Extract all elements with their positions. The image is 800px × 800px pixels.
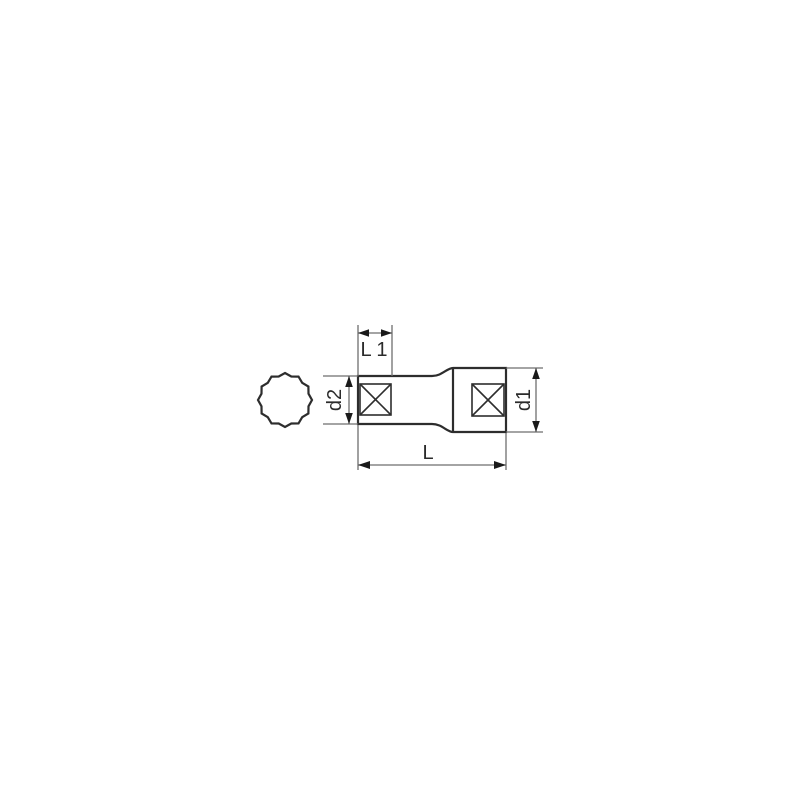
dimension-l1: L 1 xyxy=(358,325,392,376)
dimension-label-l: L xyxy=(422,442,433,464)
dimension-label-l1: L 1 xyxy=(360,339,387,361)
socket-body-outline xyxy=(358,368,506,432)
arrowhead-left-icon xyxy=(358,329,369,337)
arrowhead-up-icon xyxy=(532,368,540,379)
arrowhead-left-icon xyxy=(358,461,370,469)
bore-section-box-nut-end xyxy=(360,384,391,415)
arrowhead-right-icon xyxy=(494,461,506,469)
dimension-d1: d1 xyxy=(506,368,543,432)
arrowhead-right-icon xyxy=(381,329,392,337)
arrowhead-up-icon xyxy=(345,376,353,387)
drawing-canvas: L 1 d2 d1 L xyxy=(0,0,800,800)
bore-section-box-drive-end xyxy=(472,384,504,416)
dimension-label-d2: d2 xyxy=(324,389,346,411)
socket-side-view xyxy=(358,368,506,432)
arrowhead-down-icon xyxy=(532,421,540,432)
arrowhead-down-icon xyxy=(345,413,353,424)
socket-profile-12pt-shape xyxy=(258,373,312,427)
dimension-d2: d2 xyxy=(323,376,358,424)
dimension-label-d1: d1 xyxy=(513,389,535,411)
socket-technical-drawing: L 1 d2 d1 L xyxy=(0,0,800,800)
twelve-point-polygon xyxy=(258,373,312,427)
